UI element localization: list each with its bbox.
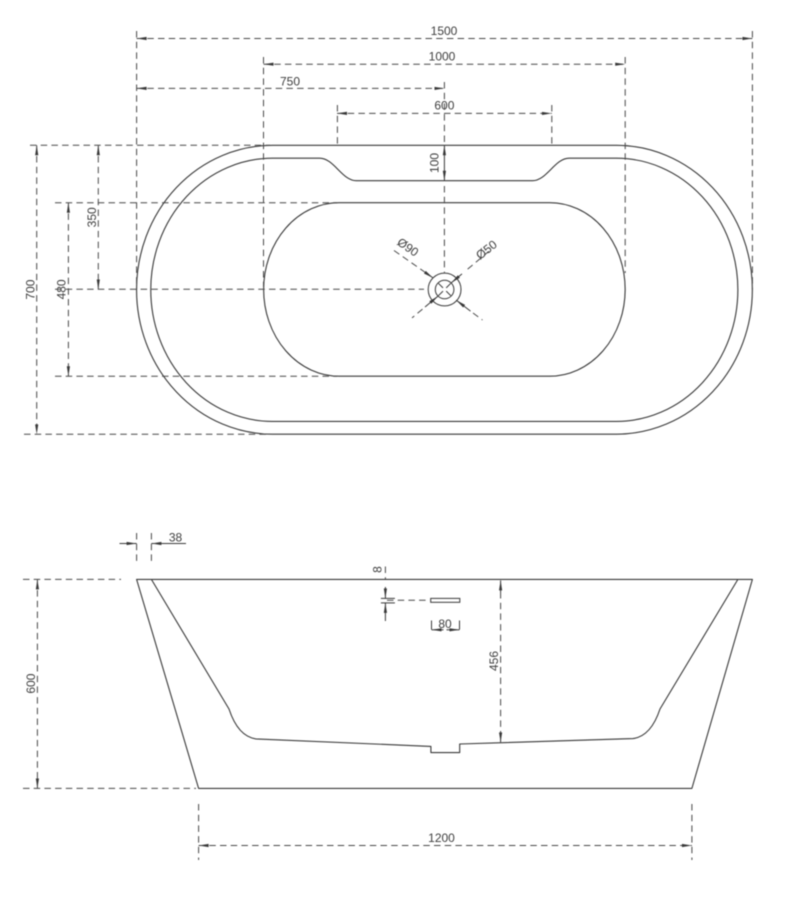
svg-text:1500: 1500	[431, 24, 458, 38]
svg-text:600: 600	[24, 673, 38, 693]
svg-text:100: 100	[428, 153, 442, 173]
svg-text:700: 700	[24, 279, 38, 299]
svg-text:Ø50: Ø50	[473, 237, 500, 262]
svg-text:1000: 1000	[429, 50, 456, 64]
svg-text:8: 8	[371, 566, 385, 573]
svg-text:1200: 1200	[428, 831, 455, 845]
svg-text:38: 38	[169, 531, 183, 545]
svg-text:80: 80	[438, 617, 452, 631]
svg-text:350: 350	[85, 207, 99, 227]
svg-text:750: 750	[280, 75, 300, 89]
svg-text:456: 456	[487, 651, 501, 671]
svg-text:Ø90: Ø90	[394, 235, 421, 260]
